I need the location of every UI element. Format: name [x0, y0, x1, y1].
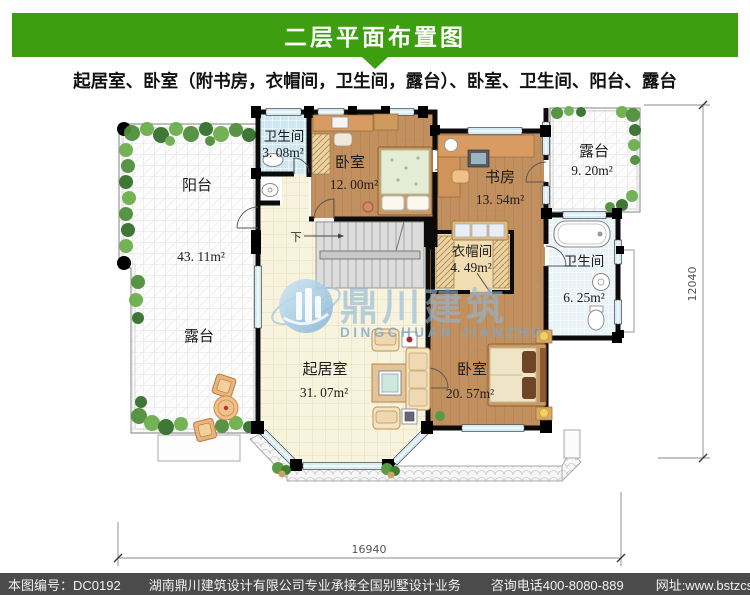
dimension-width: 16940: [352, 543, 387, 556]
sink-icon: [593, 274, 610, 291]
room-label: 卫生间: [264, 129, 305, 144]
website: 网址:www.bstzcs.com: [656, 575, 750, 594]
room-label: 衣帽间: [452, 244, 493, 259]
phone-number: 咨询电话400-8080-889: [491, 575, 624, 594]
stool: [363, 202, 373, 212]
plan-number: 本图编号：DC0192: [8, 575, 121, 594]
desk-chair: [334, 133, 352, 146]
plant: [435, 411, 445, 421]
desk-chair: [452, 170, 469, 183]
column-round: [117, 256, 131, 270]
room-label: 露台: [184, 328, 214, 345]
footer-bar: 本图编号：DC0192 湖南鼎川建筑设计有限公司专业承接全国别墅设计业务 咨询电…: [0, 573, 750, 595]
side-ledge: [620, 250, 634, 332]
dimension-height: 12040: [686, 267, 699, 302]
room-area: 4. 49m²: [450, 260, 492, 275]
bed-icon: [378, 147, 432, 215]
lamp: [540, 409, 549, 418]
room-label: 起居室: [302, 361, 347, 378]
room-area: 12. 00m²: [330, 177, 378, 192]
room-label: 阳台: [182, 177, 212, 194]
room-area: 31. 07m²: [300, 385, 348, 400]
room-area: 9. 20m²: [571, 163, 613, 178]
room-label: 卧室: [457, 361, 487, 378]
room-label: 卧室: [335, 154, 365, 171]
room-area: 13. 54m²: [476, 192, 524, 207]
company-name: 湖南鼎川建筑设计有限公司专业承接全国别墅设计业务: [149, 575, 461, 594]
desk-lamp: [445, 139, 458, 152]
wardrobe: [312, 134, 330, 174]
room-label: 书房: [485, 169, 515, 186]
watermark: 鼎川建筑 DINGCHUAN JIANZHU: [268, 279, 544, 340]
room-area: 6. 25m²: [563, 290, 605, 305]
room-area: 43. 11m²: [177, 249, 225, 264]
desk-monitor: [332, 117, 348, 128]
watermark-en: DINGCHUAN JIANZHU: [340, 325, 544, 340]
page: 二层平面布置图 起居室、卧室（附书房，衣帽间，卫生间，露台）、卧室、卫生间、阳台…: [0, 0, 750, 595]
sofa-icon: [406, 348, 430, 410]
terrace-right: 露台 9. 20m²: [550, 106, 641, 212]
balcony-terrace-left: 阳台 43. 11m² 露台: [117, 122, 258, 442]
closet: 衣帽间 4. 49m²: [433, 232, 512, 292]
room-label: 卫生间: [564, 254, 605, 269]
room-area: 20. 57m²: [446, 386, 494, 401]
room-label: 露台: [579, 143, 609, 160]
floor-plan: 阳台 43. 11m² 露台 露台 9. 20m²: [0, 0, 750, 595]
watermark-cn: 鼎川建筑: [340, 287, 508, 329]
stairs-down-label: 下: [290, 232, 302, 244]
room-area: 3. 08m²: [262, 145, 304, 160]
toilet-icon: [588, 306, 604, 330]
bench-seat: [452, 221, 508, 240]
bed-icon: [488, 344, 546, 406]
